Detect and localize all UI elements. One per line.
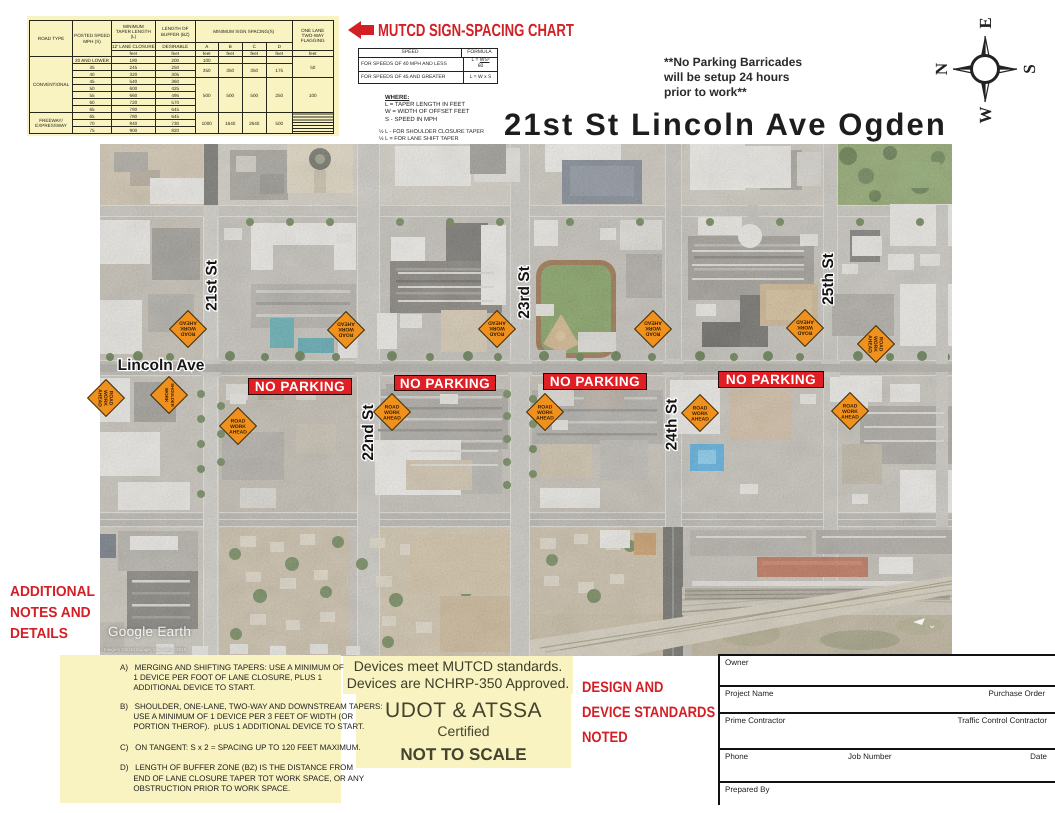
svg-text:N: N — [932, 62, 951, 75]
svg-text:24th St: 24th St — [664, 399, 681, 451]
svg-text:AHEAD: AHEAD — [179, 320, 197, 326]
svg-text:AHEAD: AHEAD — [691, 417, 709, 423]
svg-text:AHEAD: AHEAD — [867, 335, 873, 353]
svg-text:Lincoln Ave: Lincoln Ave — [118, 357, 205, 374]
svg-text:WORK: WORK — [164, 388, 169, 403]
svg-text:21st St: 21st St — [204, 260, 221, 311]
svg-text:SHOULDER: SHOULDER — [170, 383, 175, 407]
svg-text:AHEAD: AHEAD — [841, 415, 859, 421]
svg-text:AHEAD: AHEAD — [488, 320, 506, 326]
svg-text:S: S — [1020, 64, 1039, 73]
svg-text:AHEAD: AHEAD — [97, 389, 103, 407]
svg-text:23rd St: 23rd St — [516, 266, 533, 319]
svg-text:AHEAD: AHEAD — [796, 319, 814, 325]
svg-text:AHEAD: AHEAD — [383, 416, 401, 422]
svg-text:AHEAD: AHEAD — [229, 430, 247, 436]
svg-text:W: W — [976, 107, 995, 124]
svg-text:E: E — [976, 17, 995, 28]
svg-text:AHEAD: AHEAD — [337, 321, 355, 327]
svg-text:25th St: 25th St — [820, 253, 837, 305]
svg-text:AHEAD: AHEAD — [536, 416, 554, 422]
svg-text:AHEAD: AHEAD — [644, 320, 662, 326]
